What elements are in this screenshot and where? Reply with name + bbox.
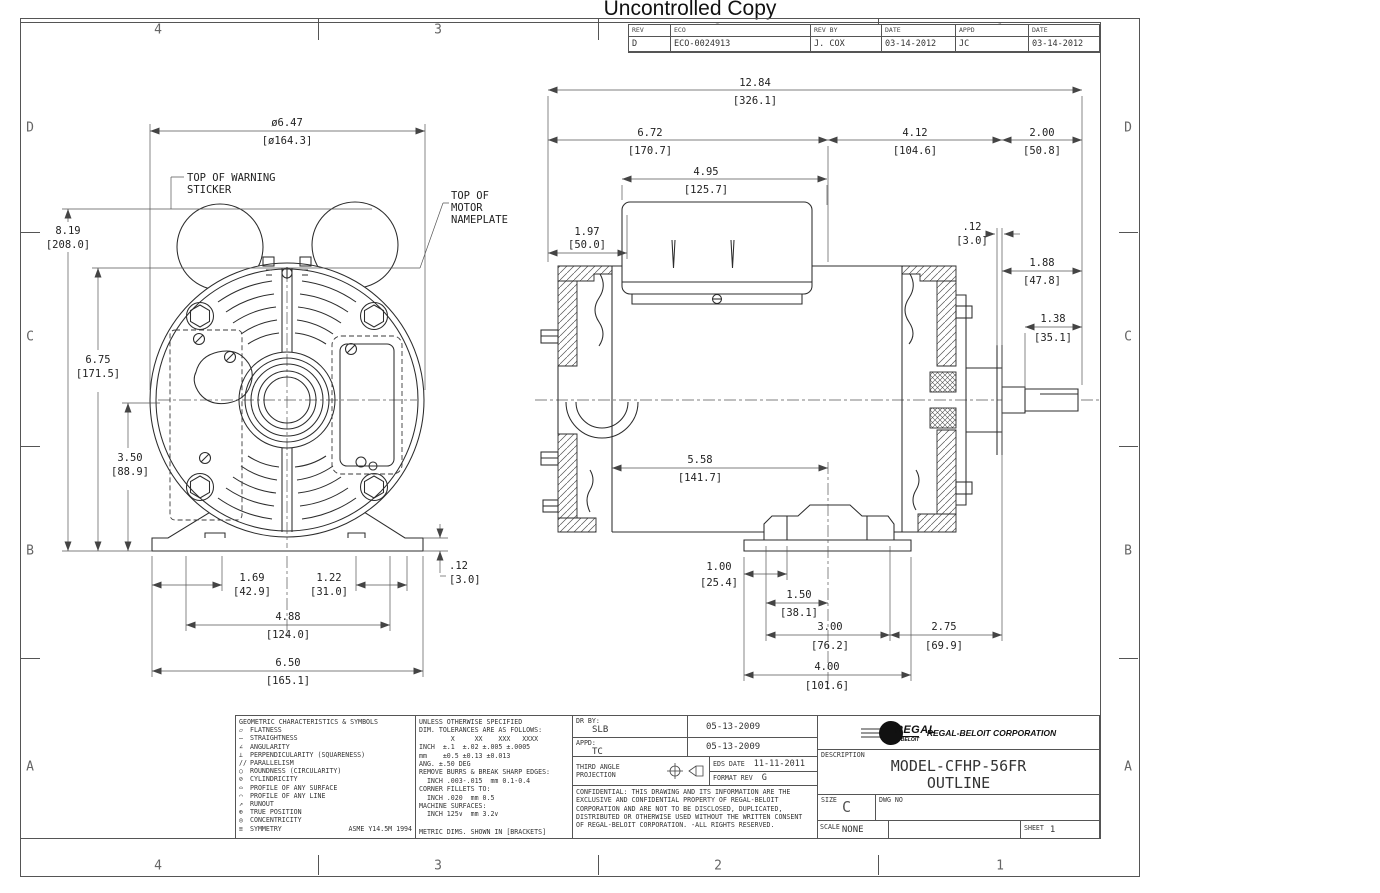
geo-label: CYLINDRICITY [250, 775, 298, 783]
dim-label: [3.0] [956, 235, 988, 247]
callout-nameplate: TOP OF [451, 190, 489, 202]
engineering-drawing-page: Uncontrolled Copy 4 3 2 1 4 3 2 1 D C B … [0, 0, 1380, 893]
dim-label: 4.12 [902, 127, 927, 139]
drby-value: SLB [576, 725, 684, 735]
dim-label: 6.50 [275, 657, 300, 669]
dim-label: [35.1] [1034, 332, 1072, 344]
cylindricity-icon: ⊘ [239, 775, 250, 783]
geo-label: PROFILE OF ANY SURFACE [250, 784, 337, 792]
dim-label: 2.75 [931, 621, 956, 633]
dim-label: [42.9] [233, 586, 271, 598]
geo-label: TRUE POSITION [250, 808, 302, 816]
dim-label: 4.88 [275, 611, 300, 623]
sheet-label: SHEET [1021, 824, 1046, 836]
sheet-value: 1 [1046, 825, 1055, 835]
geo-label: SYMMETRY [250, 825, 282, 833]
dim-label: [ø164.3] [262, 135, 313, 147]
side-view-dimensions: 12.84 [326.1] 6.72 [170.7] 4.12 [104.6] … [548, 77, 1082, 692]
tol-line: X XX XXX XXXX [419, 735, 569, 743]
dim-label: 1.88 [1029, 257, 1054, 269]
geo-label: RUNOUT [250, 800, 274, 808]
tol-line: REMOVE BURRS & BREAK SHARP EDGES: [419, 768, 569, 776]
dim-label: [326.1] [733, 95, 777, 107]
true-position-icon: ⊕ [239, 808, 250, 816]
tol-line: MACHINE SURFACES: [419, 802, 569, 810]
company-panel: REGAL BELOIT REGAL-BELOIT CORPORATION DE… [818, 716, 1100, 838]
bearing-section [930, 408, 956, 428]
empty-cell [889, 821, 1021, 838]
tolerance-panel: UNLESS OTHERWISE SPECIFIED DIM. TOLERANC… [416, 716, 573, 838]
appd-date: 05-13-2009 [688, 738, 817, 756]
dim-label: 1.00 [706, 561, 731, 573]
callout-warning-sticker: STICKER [187, 184, 232, 196]
format-rev-label: FORMAT REV [710, 774, 756, 782]
regal-beloit-logo: REGAL BELOIT [861, 721, 921, 745]
dim-label: [3.0] [449, 574, 481, 586]
scale-value: NONE [842, 825, 864, 835]
rev-header: DATE [882, 25, 956, 37]
dim-label: 1.38 [1040, 313, 1065, 325]
rev-header: ECO [671, 25, 811, 37]
dim-label: [170.7] [628, 145, 672, 157]
dim-label: ø6.47 [271, 117, 303, 129]
dim-label: 5.58 [687, 454, 712, 466]
dim-label: 6.75 [85, 354, 110, 366]
dim-label: 1.22 [316, 572, 341, 584]
perpendicularity-icon: ⊥ [239, 751, 250, 759]
roundness-icon: ○ [239, 767, 250, 775]
dim-label: [47.8] [1023, 275, 1061, 287]
dim-label: [76.2] [811, 640, 849, 652]
third-angle-projection-icon [665, 762, 706, 780]
bearing-section [930, 372, 956, 392]
callout-warning-sticker: TOP OF WARNING [187, 172, 276, 184]
approval-panel: DR BY:SLB 05-13-2009 APPD:TC 05-13-2009 … [573, 716, 818, 838]
dim-label: 3.50 [117, 452, 142, 464]
geo-label: STRAIGHTNESS [250, 734, 298, 742]
capacitor-cover [622, 202, 812, 294]
dim-label: 1.97 [574, 226, 599, 238]
rev-header: REV [629, 25, 671, 37]
geo-label: FLATNESS [250, 726, 282, 734]
rev-value: ECO-0024913 [671, 37, 811, 52]
dim-label: [38.1] [780, 607, 818, 619]
tol-line: mm ±0.5 ±0.13 ±0.013 [419, 752, 569, 760]
tol-line: DIM. TOLERANCES ARE AS FOLLOWS: [419, 726, 569, 734]
dim-label: 8.19 [55, 225, 80, 237]
revision-table: REV ECO REV BY DATE APPD DATE D ECO-0024… [628, 24, 1101, 53]
profile-line-icon: ⌒ [239, 792, 250, 800]
callout-nameplate: MOTOR [451, 202, 483, 214]
angularity-icon: ∠ [239, 743, 250, 751]
eds-date-label: EDS DATE [710, 760, 748, 768]
dim-label: [125.7] [684, 184, 728, 196]
dim-label: [31.0] [310, 586, 348, 598]
dim-label: [25.4] [700, 577, 738, 589]
tol-line: UNLESS OTHERWISE SPECIFIED [419, 718, 569, 726]
mounting-base [744, 505, 911, 551]
dim-label: 4.00 [814, 661, 839, 673]
eds-date-value: 11-11-2011 [748, 759, 805, 769]
concentricity-icon: ◎ [239, 816, 250, 824]
flatness-icon: ▱ [239, 726, 250, 734]
dim-label: 3.00 [817, 621, 842, 633]
dim-label: .12 [449, 560, 468, 572]
drby-label: DR BY: [576, 717, 600, 725]
rev-header: REV BY [811, 25, 882, 37]
tol-line: ANG. ±.50 DEG [419, 760, 569, 768]
model-number: MODEL-CFHP-56FR [818, 758, 1099, 775]
geo-title: GEOMETRIC CHARACTERISTICS & SYMBOLS [239, 718, 412, 726]
logo-beloit-text: BELOIT [901, 736, 919, 743]
callout-nameplate: NAMEPLATE [451, 214, 508, 226]
symmetry-icon: ≡ [239, 825, 250, 833]
profile-surface-icon: ⌓ [239, 784, 250, 792]
tol-line: INCH 125∨ mm 3.2∨ [419, 810, 569, 818]
geo-label: ROUNDNESS (CIRCULARITY) [250, 767, 341, 775]
tol-line: INCH .020 mm 0.5 [419, 794, 569, 802]
dim-label: 1.50 [786, 589, 811, 601]
asme-standard: ASME Y14.5M 1994 [348, 825, 412, 833]
geo-label: CONCENTRICITY [250, 816, 302, 824]
dim-label: 12.84 [739, 77, 771, 89]
rev-value: JC [956, 37, 1029, 52]
title-block: GEOMETRIC CHARACTERISTICS & SYMBOLS ▱FLA… [235, 715, 1100, 839]
dim-label: .12 [963, 221, 982, 233]
size-value: C [818, 798, 875, 816]
rev-header: APPD [956, 25, 1029, 37]
dim-label: [50.0] [568, 239, 606, 251]
tol-line: CORNER FILLETS TO: [419, 785, 569, 793]
dim-label: [124.0] [266, 629, 310, 641]
runout-icon: ↗ [239, 800, 250, 808]
rev-header: DATE [1029, 25, 1100, 37]
motor-shaft [1002, 387, 1078, 413]
dim-label: [208.0] [46, 239, 90, 251]
rev-value: 03-14-2012 [882, 37, 956, 52]
confidential-notice: CONFIDENTIAL: THIS DRAWING AND ITS INFOR… [573, 786, 817, 838]
dim-label: [104.6] [893, 145, 937, 157]
scale-label: SCALE [818, 823, 842, 837]
logo-regal-text: REGAL [895, 724, 936, 736]
projection-label: THIRD ANGLE PROJECTION [576, 763, 661, 779]
geo-label: ANGULARITY [250, 743, 290, 751]
appd-value: TC [576, 747, 684, 757]
dim-label: [50.8] [1023, 145, 1061, 157]
dim-label: 1.69 [239, 572, 264, 584]
dim-label: [88.9] [111, 466, 149, 478]
rev-value: J. COX [811, 37, 882, 52]
tol-line: INCH .003-.015 mm 0.1-0.4 [419, 777, 569, 785]
format-rev-value: G [756, 773, 767, 783]
appd-label: APPD: [576, 739, 596, 747]
rev-value: 03-14-2012 [1029, 37, 1100, 52]
tol-line: METRIC DIMS. SHOWN IN [BRACKETS] [419, 828, 569, 836]
dim-label: 2.00 [1029, 127, 1054, 139]
dim-label: 6.72 [637, 127, 662, 139]
straightness-icon: — [239, 734, 250, 742]
dim-label: [171.5] [76, 368, 120, 380]
geometric-symbols-panel: GEOMETRIC CHARACTERISTICS & SYMBOLS ▱FLA… [236, 716, 416, 838]
geo-label: PERPENDICULARITY (SQUARENESS) [250, 751, 365, 759]
geo-label: PARALLELISM [250, 759, 294, 767]
tol-line: INCH ±.1 ±.02 ±.005 ±.0005 [419, 743, 569, 751]
company-name: REGAL-BELOIT CORPORATION [927, 728, 1056, 738]
dwg-no-label: DWG NO [876, 795, 1099, 820]
dim-label: 4.95 [693, 166, 718, 178]
dim-label: [101.6] [805, 680, 849, 692]
rev-value: D [629, 37, 671, 52]
drby-date: 05-13-2009 [688, 716, 817, 737]
parallelism-icon: // [239, 759, 250, 767]
mounting-bolts [541, 330, 558, 512]
dim-label: [165.1] [266, 675, 310, 687]
drawing-description: MODEL-CFHP-56FR OUTLINE [818, 758, 1099, 792]
drawing-type: OUTLINE [818, 775, 1099, 792]
geo-label: PROFILE OF ANY LINE [250, 792, 325, 800]
dim-label: [141.7] [678, 472, 722, 484]
dim-label: [69.9] [925, 640, 963, 652]
